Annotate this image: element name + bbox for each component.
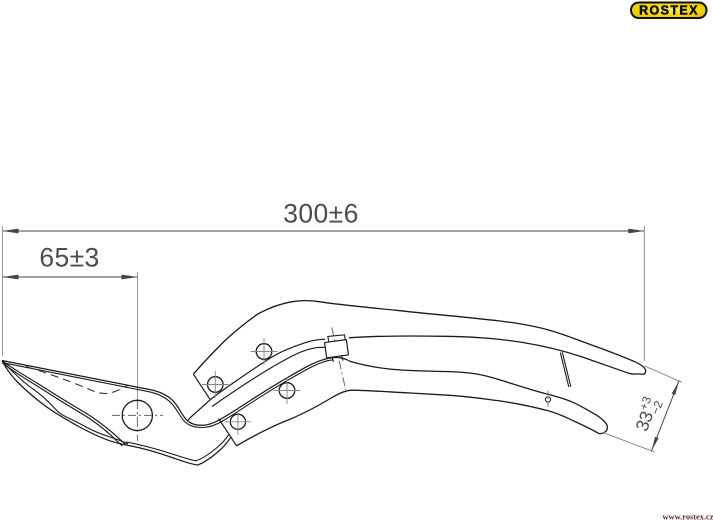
svg-text:www.rostex.cz: www.rostex.cz bbox=[662, 513, 713, 520]
svg-text:ROSTEX: ROSTEX bbox=[639, 4, 699, 18]
svg-text:300±6: 300±6 bbox=[283, 199, 359, 229]
svg-text:65±3: 65±3 bbox=[39, 243, 99, 273]
